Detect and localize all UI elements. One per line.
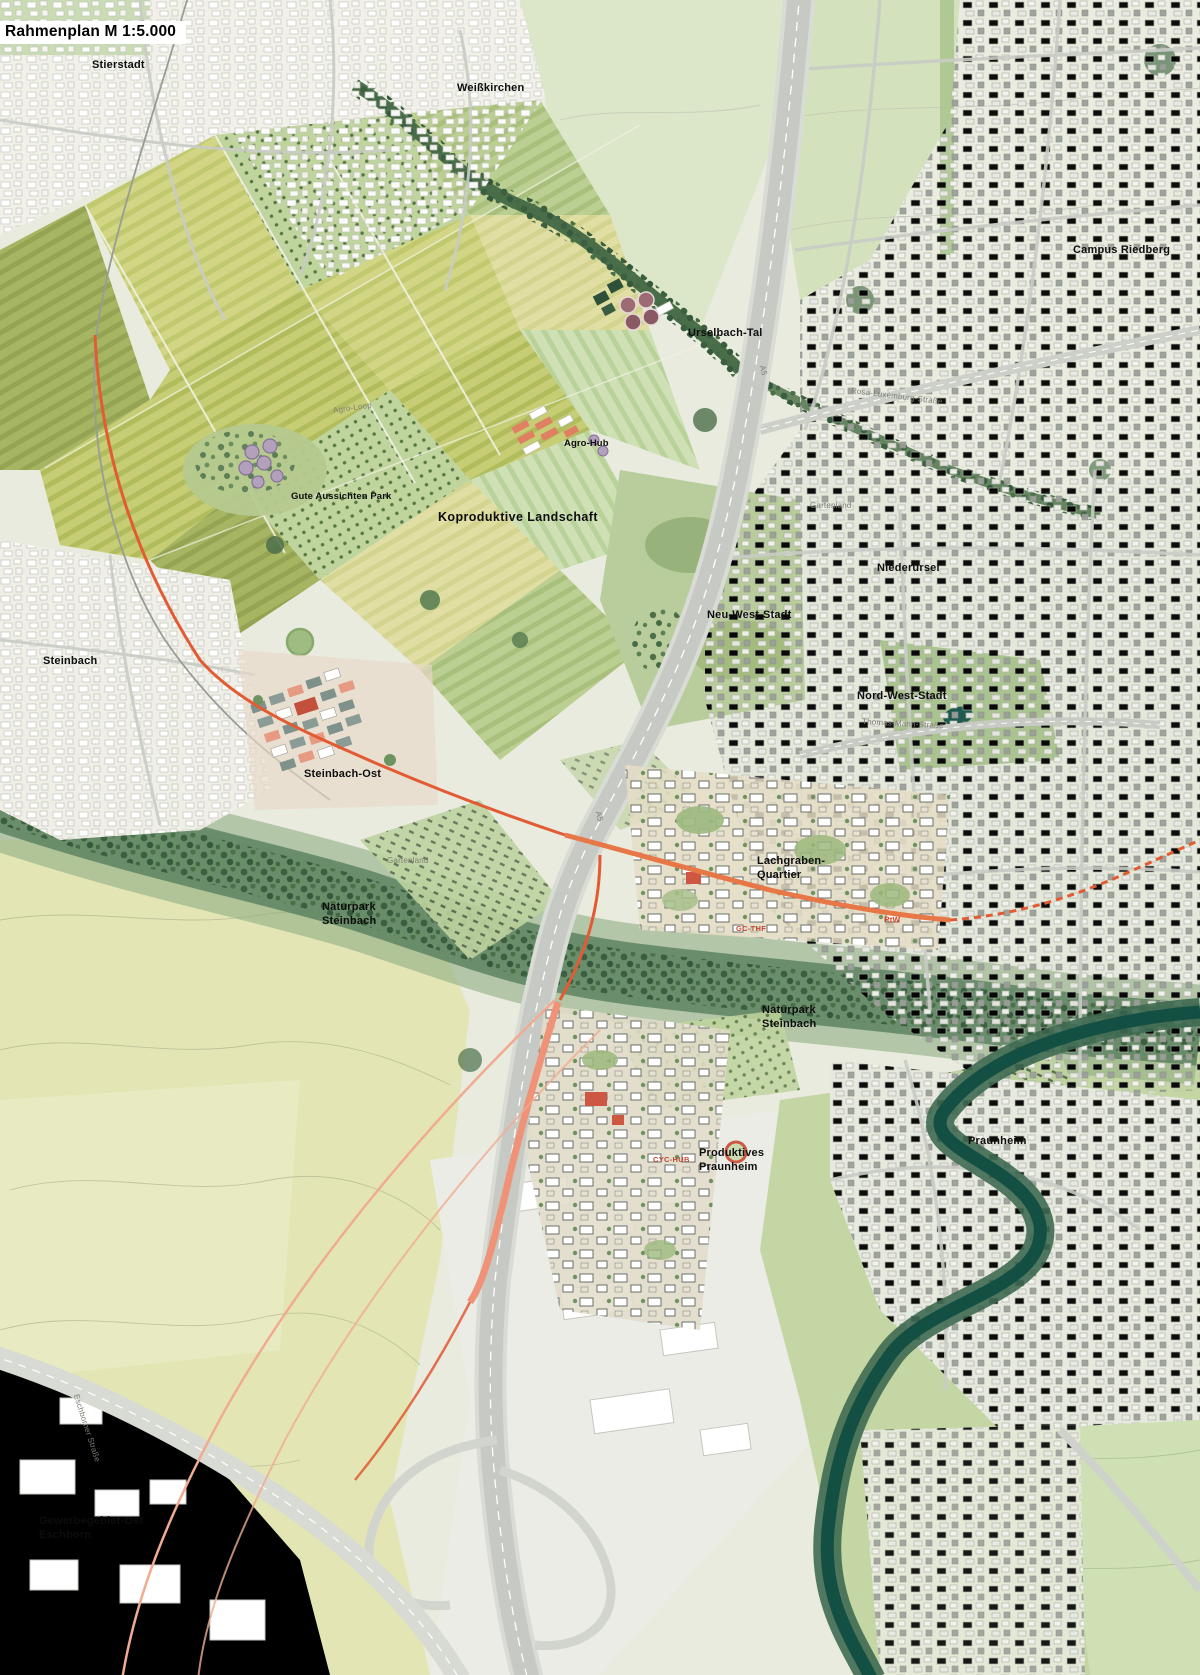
- lachgraben-quartier: [625, 765, 950, 950]
- masterplan-map: StierstadtWeißkirchenCampus RiedbergUrse…: [0, 0, 1200, 1675]
- map-title: Rahmenplan M 1:5.000: [0, 21, 186, 44]
- steinbach-ost-quarter: [238, 650, 438, 810]
- map-canvas: [0, 0, 1200, 1675]
- produktives-praunheim-quartier: [525, 1005, 730, 1330]
